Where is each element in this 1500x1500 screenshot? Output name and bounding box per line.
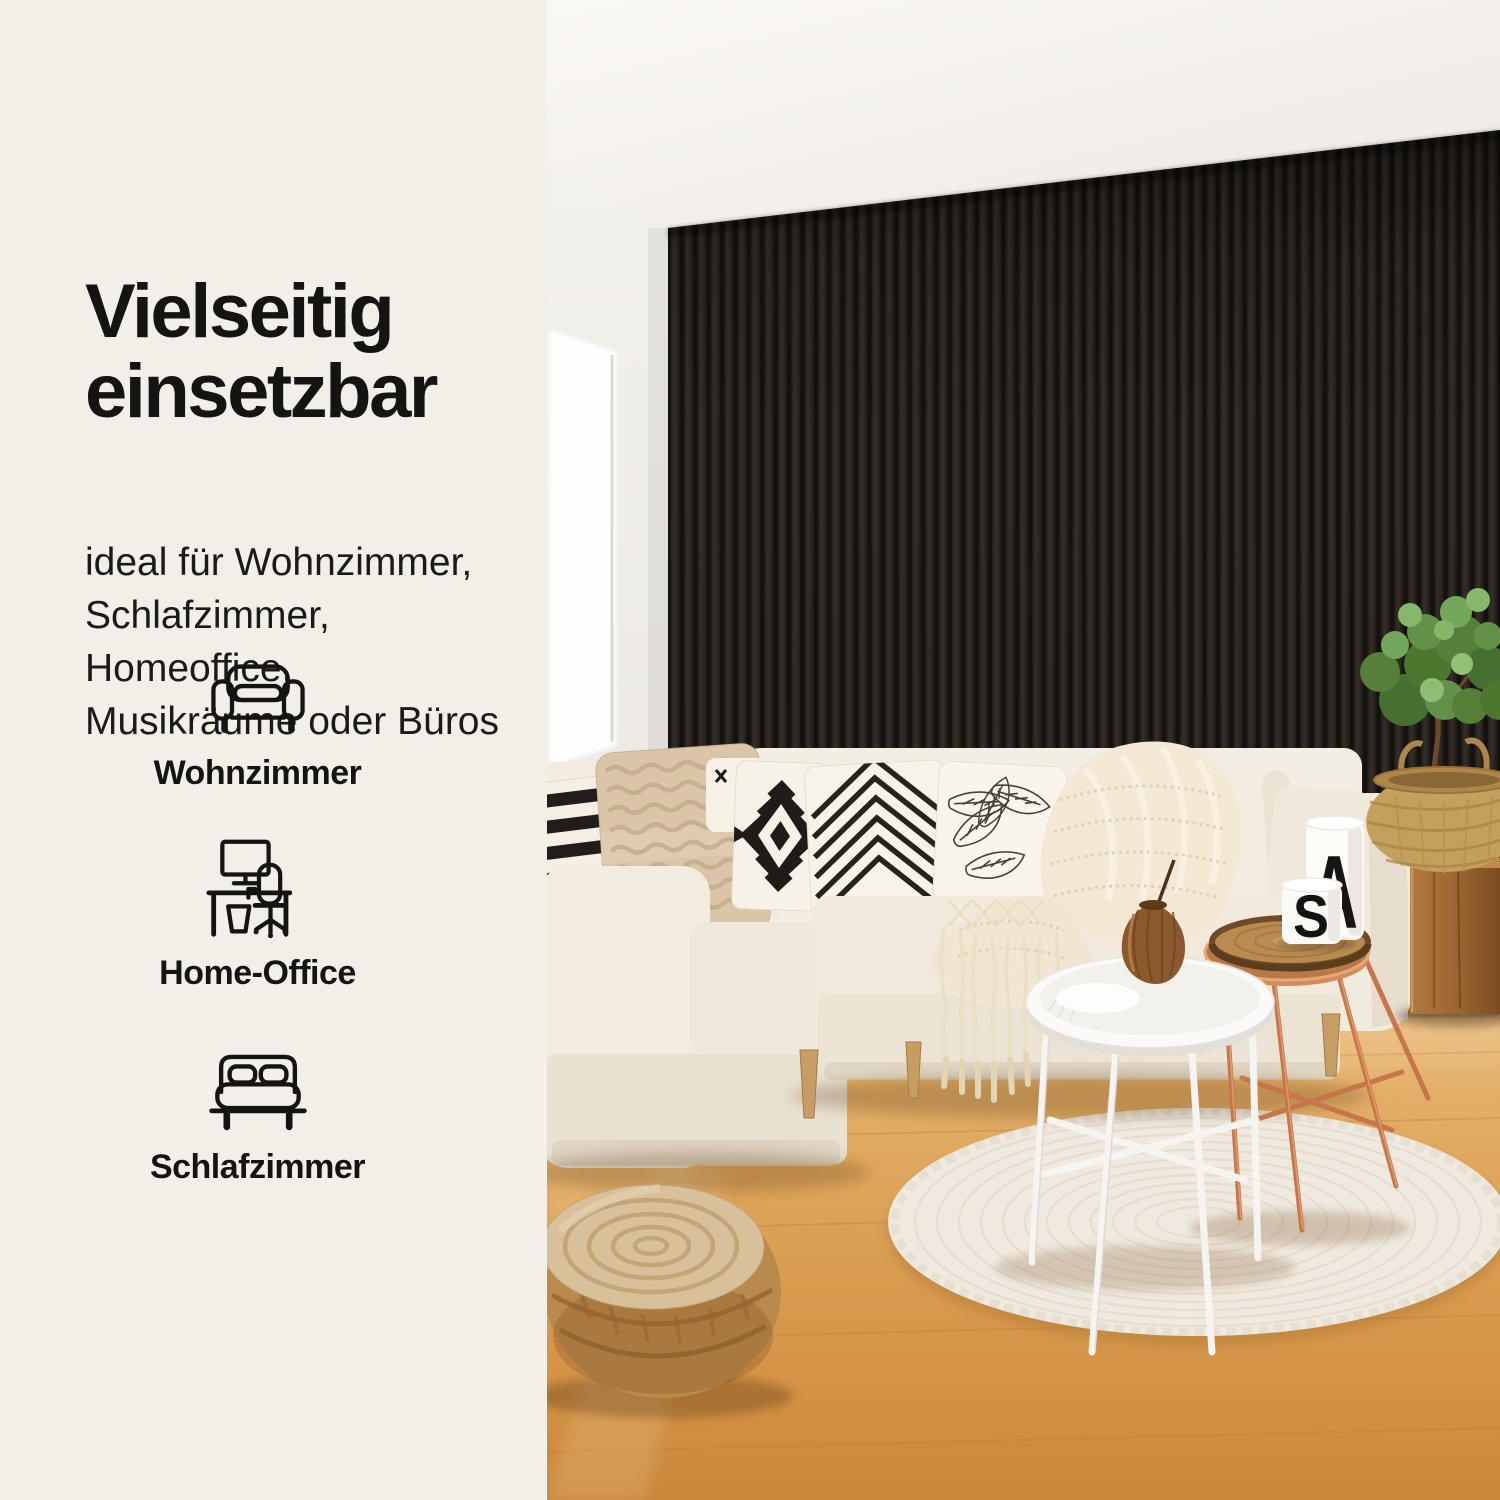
headline-line-1: Vielseitig [85,272,436,352]
feature-label: Wohnzimmer [154,754,362,793]
page-title: Vielseitig einsetzbar [85,272,436,432]
mug-letter-s: S [1293,883,1329,950]
wood-stool [1396,858,1500,1027]
desk-icon [205,838,311,940]
feature-living-room: Wohnzimmer [85,660,430,793]
sofa-icon [206,660,310,740]
product-marketing-image: Vielseitig einsetzbar ideal für Wohnzimm… [0,0,1500,1500]
room-photo-canvas: A S [547,0,1500,1500]
fringed-napkin [1056,983,1140,1013]
feature-label: Home-Office [159,954,356,993]
window-light [549,330,616,766]
info-panel: Vielseitig einsetzbar ideal für Wohnzimm… [0,0,547,1500]
headline-line-2: einsetzbar [85,352,436,432]
bed-icon [206,1048,310,1134]
subtitle-line-1: ideal für Wohnzimmer, [85,536,547,589]
room-photo: A S [547,0,1500,1500]
feature-home-office: Home-Office [85,838,430,993]
feature-label: Schlafzimmer [150,1148,365,1187]
feature-bedroom: Schlafzimmer [85,1048,430,1187]
pillow-chevron [804,754,952,920]
